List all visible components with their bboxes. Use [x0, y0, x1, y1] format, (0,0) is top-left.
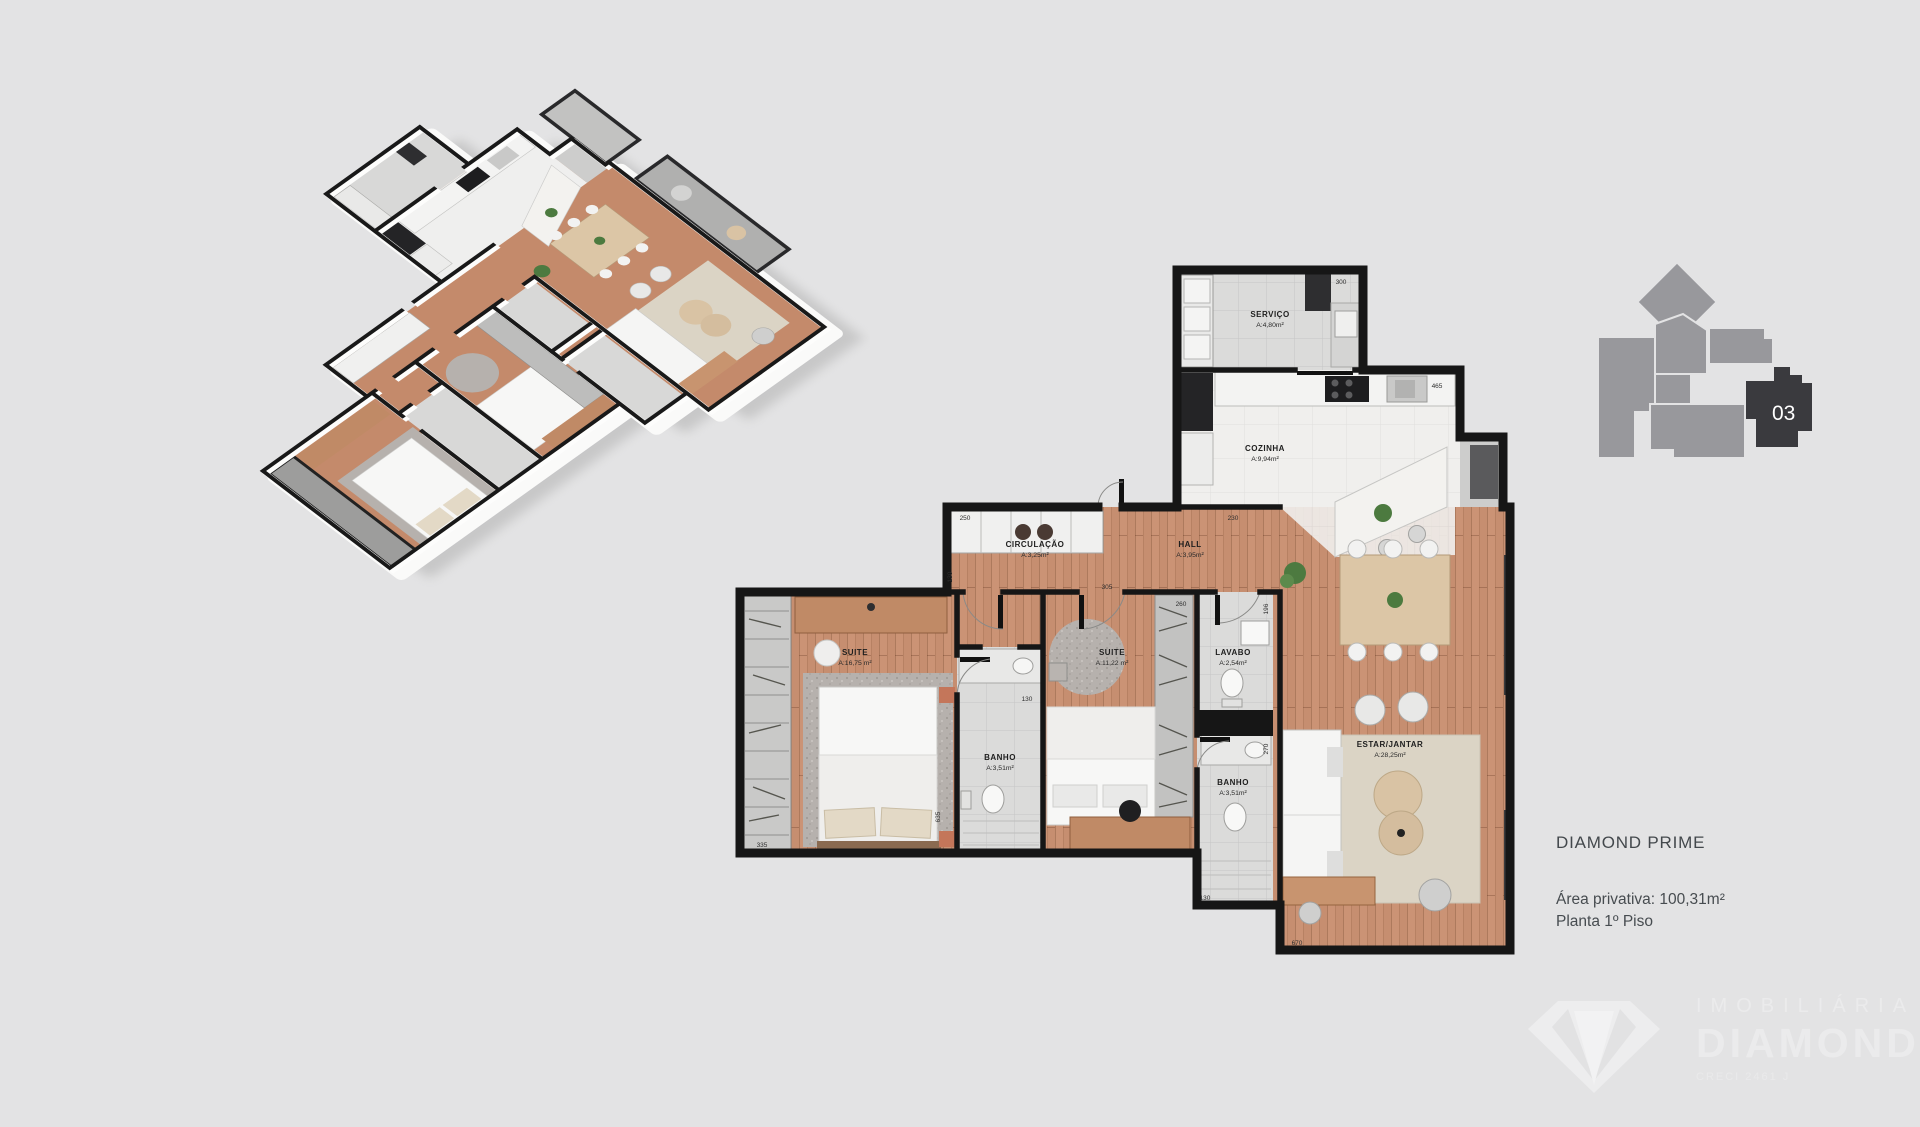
- room-label: LAVABO: [1215, 648, 1251, 657]
- plan-title: DIAMOND PRIME: [1556, 833, 1725, 853]
- dimension-label: 465: [1432, 383, 1443, 390]
- watermark-line3: CRECI 2461 J: [1696, 1071, 1920, 1083]
- dimension-label: 635: [935, 811, 942, 822]
- room-area: A:11,22 m²: [1096, 660, 1129, 667]
- dimension-label: 300: [1336, 279, 1347, 286]
- room-area: A:3,51m²: [986, 765, 1014, 772]
- keyplan-mid: [1655, 374, 1691, 404]
- keyplan-wing-center: [1655, 314, 1707, 374]
- niche-unit: [1470, 445, 1498, 499]
- floorplan-sheet: { "info": { "title": "DIAMOND PRIME", "a…: [0, 0, 1920, 1127]
- floorplan-2d-view: SERVIÇO A:4,80m² COZINHA A:9,94m² CIRCUL…: [735, 255, 1520, 960]
- room-area: A:4,80m²: [1256, 322, 1284, 329]
- room-label: SERVIÇO: [1250, 310, 1289, 319]
- keyplan-wing-left: [1598, 337, 1655, 458]
- dimension-label: 270: [1263, 743, 1270, 754]
- room-area: A:3,51m²: [1219, 790, 1247, 797]
- dimension-label: 260: [1176, 601, 1187, 608]
- keyplan-wing-right: [1709, 328, 1773, 364]
- private-area-text: Área privativa: 100,31m²: [1556, 891, 1725, 909]
- brand-watermark: IMOBILIÁRIA DIAMOND CRECI 2461 J: [1528, 995, 1920, 1095]
- suite1-furniture: [743, 595, 955, 851]
- dimension-label: 130: [1200, 895, 1211, 902]
- room-label: HALL: [1178, 540, 1201, 549]
- plumbing-wall: [1197, 710, 1273, 736]
- room-area: A:28,25m²: [1374, 752, 1406, 759]
- watermark-line1: IMOBILIÁRIA: [1696, 995, 1920, 1018]
- room-label: BANHO: [984, 753, 1016, 762]
- floor-text: Planta 1º Piso: [1556, 913, 1725, 931]
- dimension-label: 196: [1263, 603, 1270, 614]
- room-area: A:3,25m²: [1021, 552, 1049, 559]
- keyplan-wing-bottom: [1650, 404, 1745, 458]
- keyplan: 03: [1595, 262, 1840, 467]
- room-label: BANHO: [1217, 778, 1249, 787]
- room-label: SUITE: [1099, 648, 1125, 657]
- dimension-label: 670: [1292, 940, 1303, 947]
- room-label: COZINHA: [1245, 444, 1285, 453]
- dimension-label: 130: [1022, 696, 1033, 703]
- dimension-label: 230: [1228, 515, 1239, 522]
- diamond-logo-icon: [1528, 995, 1660, 1095]
- watermark-line2: DIAMOND: [1696, 1020, 1920, 1067]
- dimension-label: 250: [960, 515, 971, 522]
- room-label: CIRCULAÇÃO: [1006, 540, 1065, 549]
- dimension-label: 305: [1102, 584, 1113, 591]
- room-area: A:2,54m²: [1219, 660, 1247, 667]
- dimension-label: 335: [757, 842, 768, 849]
- keyplan-unit-number: 03: [1772, 402, 1795, 425]
- room-area: A:16,75 m²: [838, 660, 872, 667]
- room-label: ESTAR/JANTAR: [1357, 740, 1424, 749]
- room-label: SUITE: [842, 648, 868, 657]
- room-area: A:3,95m²: [1176, 552, 1204, 559]
- dimension-label: 130: [947, 571, 954, 582]
- room-area: A:9,94m²: [1251, 456, 1279, 463]
- plan-info: DIAMOND PRIME Área privativa: 100,31m² P…: [1556, 833, 1725, 931]
